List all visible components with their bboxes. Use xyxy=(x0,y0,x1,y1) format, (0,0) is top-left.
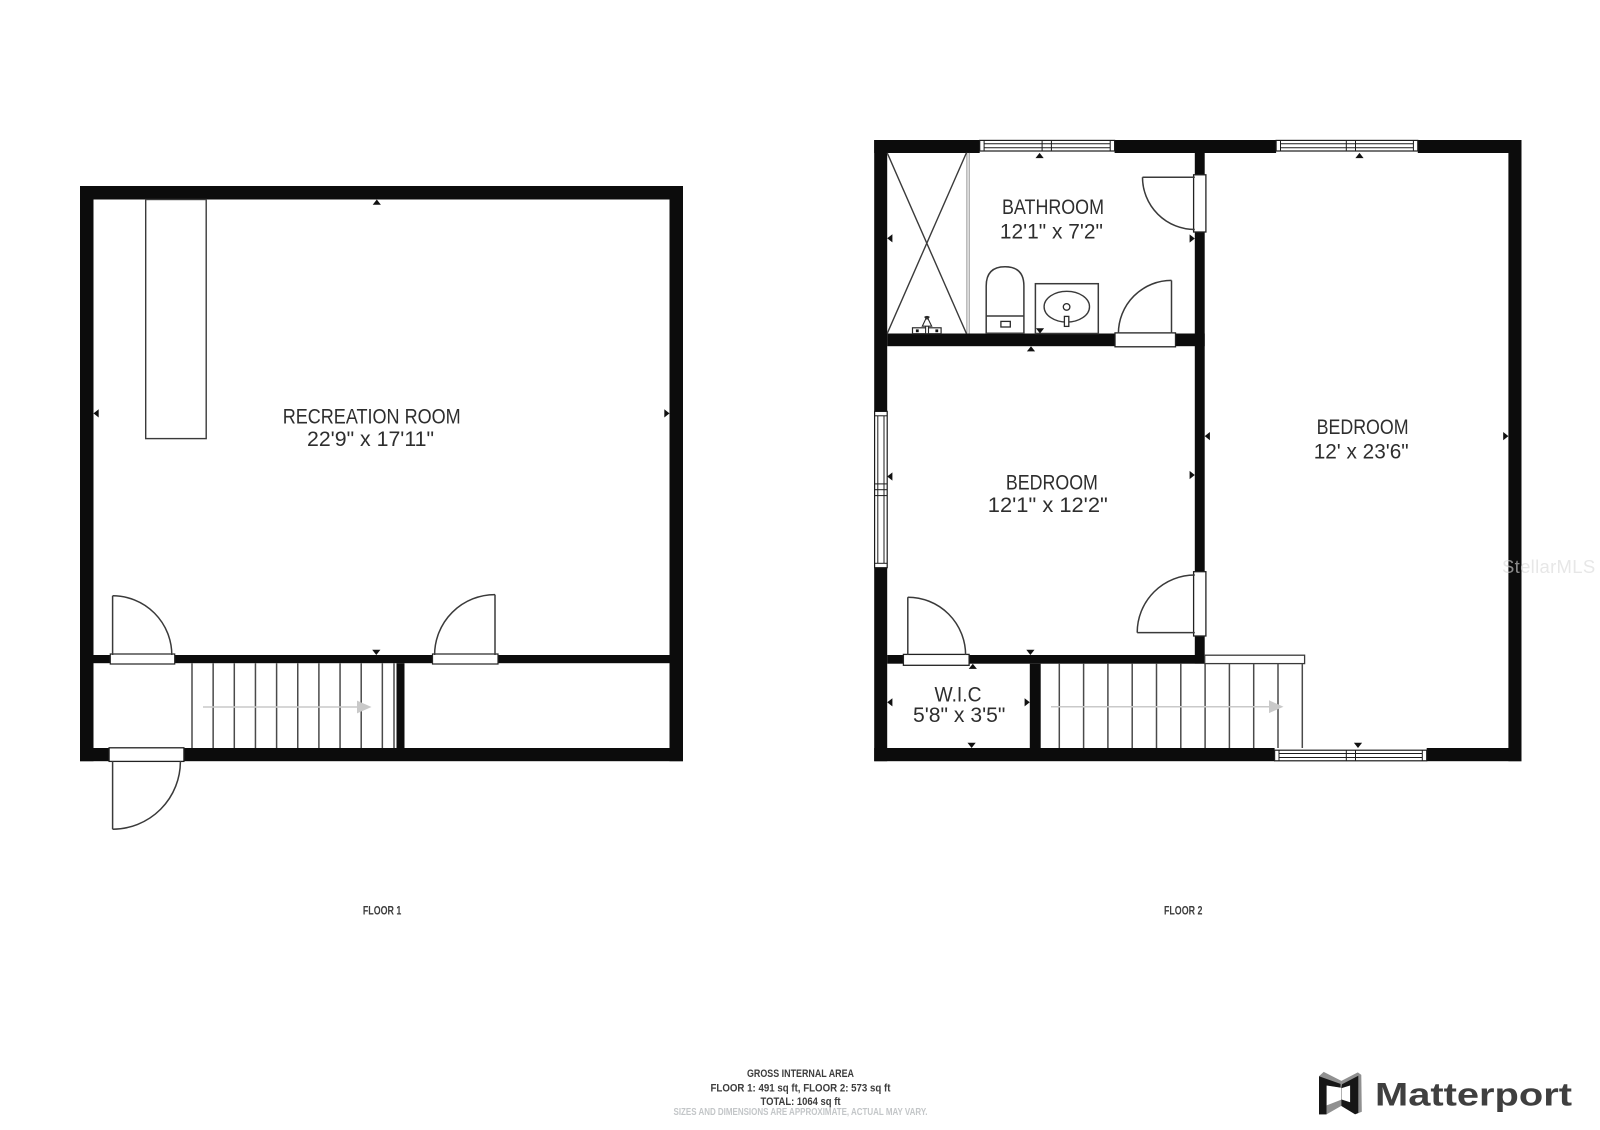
svg-text:FLOOR 2: FLOOR 2 xyxy=(1164,904,1203,917)
svg-text:StellarMLS: StellarMLS xyxy=(1502,556,1595,577)
svg-text:GROSS INTERNAL AREA: GROSS INTERNAL AREA xyxy=(747,1068,854,1080)
svg-text:BEDROOM: BEDROOM xyxy=(1317,415,1409,439)
svg-text:FLOOR 1: 491 sq ft, FLOOR 2: 5: FLOOR 1: 491 sq ft, FLOOR 2: 573 sq ft xyxy=(711,1082,891,1094)
svg-text:5'8" x 3'5": 5'8" x 3'5" xyxy=(913,703,1006,727)
svg-text:BEDROOM: BEDROOM xyxy=(1006,470,1098,494)
svg-text:RECREATION ROOM: RECREATION ROOM xyxy=(283,404,461,428)
svg-text:Matterport: Matterport xyxy=(1375,1077,1572,1113)
svg-text:FLOOR 1: FLOOR 1 xyxy=(363,904,402,917)
svg-text:BATHROOM: BATHROOM xyxy=(1002,195,1104,219)
svg-text:12'1" x 7'2": 12'1" x 7'2" xyxy=(1000,219,1103,243)
svg-text:22'9" x 17'11": 22'9" x 17'11" xyxy=(307,427,434,451)
svg-text:12' x 23'6": 12' x 23'6" xyxy=(1314,440,1409,464)
svg-text:SIZES AND DIMENSIONS ARE APPRO: SIZES AND DIMENSIONS ARE APPROXIMATE, AC… xyxy=(674,1107,928,1118)
svg-text:12'1" x 12'2": 12'1" x 12'2" xyxy=(988,493,1108,517)
